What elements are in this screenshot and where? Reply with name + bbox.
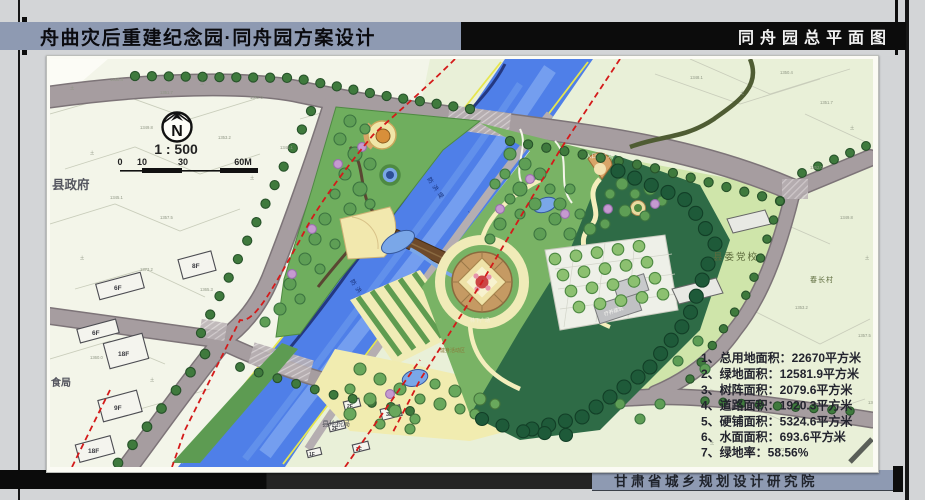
scale-bar: 0 10 30 60M — [117, 157, 258, 173]
footer-institute-bar: 甘肃省城乡规划设计研究院 — [592, 470, 893, 491]
svg-text:18F: 18F — [118, 351, 129, 358]
svg-text:1365.3: 1365.3 — [200, 287, 213, 292]
svg-text:1349.8: 1349.8 — [840, 215, 853, 220]
svg-text:60M: 60M — [234, 157, 252, 167]
svg-text:1350.4: 1350.4 — [110, 77, 123, 82]
svg-text:10: 10 — [137, 157, 147, 167]
svg-text:1357.5: 1357.5 — [160, 215, 173, 220]
svg-text:0: 0 — [117, 157, 122, 167]
svg-text:土: 土 — [90, 149, 94, 155]
svg-text:土: 土 — [150, 376, 154, 382]
svg-text:1360.0: 1360.0 — [90, 355, 103, 360]
drawing-sheet: { "header": { "title_left": "舟曲灾后重建纪念园·同… — [0, 0, 925, 500]
svg-text:1F: 1F — [309, 452, 315, 458]
statistics-list: 1、总用地面积：22670平方米 2、绿地面积：12581.9平方米 3、树阵面… — [701, 350, 862, 460]
svg-text:6F: 6F — [92, 330, 100, 337]
site-plan-svg: 防洪堤 防洪堤 三眼峪 — [50, 59, 873, 467]
grain-bureau-label: 食局 — [50, 376, 71, 389]
svg-text:30: 30 — [178, 157, 188, 167]
svg-text:1350.4: 1350.4 — [780, 70, 793, 75]
north-letter: N — [171, 123, 183, 140]
svg-text:1348.1: 1348.1 — [690, 75, 703, 80]
svg-text:6F: 6F — [114, 285, 122, 292]
title-right-band: 同舟园总平面图 — [461, 22, 906, 50]
svg-text:6、水面面积：693.6平方米: 6、水面面积：693.6平方米 — [701, 429, 847, 444]
junction-hatch-ne — [782, 179, 808, 199]
left-trim-line — [18, 0, 20, 500]
svg-text:土: 土 — [200, 79, 204, 85]
svg-text:1349.8: 1349.8 — [140, 125, 153, 130]
svg-text:土: 土 — [250, 174, 254, 180]
svg-text:5、硬铺面积：5324.6平方米: 5、硬铺面积：5324.6平方米 — [701, 414, 853, 429]
site-plan-paper: 防洪堤 防洪堤 三眼峪 — [46, 55, 879, 473]
svg-text:9F: 9F — [114, 405, 122, 412]
svg-text:1、总用地面积：22670平方米: 1、总用地面积：22670平方米 — [701, 350, 862, 365]
scale-text: 1 : 500 — [154, 141, 198, 157]
right-trim-line — [905, 0, 909, 500]
svg-text:1373.2: 1373.2 — [140, 267, 153, 272]
svg-text:1352.0: 1352.0 — [250, 95, 263, 100]
footer-right-tick — [893, 466, 903, 492]
fitness-area-label: 健身活动区 — [440, 347, 465, 354]
svg-text:1351.7: 1351.7 — [820, 100, 833, 105]
title-left-band: 舟曲灾后重建纪念园·同舟园方案设计 — [0, 22, 461, 50]
tax-bureau-label: 县地税局 — [322, 419, 350, 428]
village-label: 春长村 — [810, 275, 834, 284]
svg-text:3、树阵面积：2079.6平方米: 3、树阵面积：2079.6平方米 — [701, 382, 853, 397]
svg-text:1352.0: 1352.0 — [810, 165, 823, 170]
svg-text:1345.1: 1345.1 — [110, 195, 123, 200]
svg-text:4、道路面积：1920.3平方米: 4、道路面积：1920.3平方米 — [701, 398, 853, 413]
svg-text:土: 土 — [850, 124, 854, 130]
svg-text:1353.2: 1353.2 — [795, 305, 808, 310]
sheet-title: 舟曲灾后重建纪念园·同舟园方案设计 — [40, 23, 376, 50]
svg-text:1353.2: 1353.2 — [218, 135, 231, 140]
svg-text:1351.7: 1351.7 — [160, 90, 173, 95]
svg-text:1360.0: 1360.0 — [868, 400, 873, 405]
svg-text:1348.1: 1348.1 — [280, 145, 293, 150]
svg-text:土: 土 — [865, 254, 869, 260]
svg-text:土: 土 — [70, 84, 74, 90]
svg-text:1357.5: 1357.5 — [858, 333, 871, 338]
svg-text:2、绿地面积：12581.9平方米: 2、绿地面积：12581.9平方米 — [701, 366, 860, 381]
svg-text:土: 土 — [80, 254, 84, 260]
svg-text:7、绿地率：58.56%: 7、绿地率：58.56% — [701, 445, 809, 460]
party-school-label: 县委党校 — [713, 251, 759, 263]
north-compass: N — [163, 113, 192, 142]
institute-name: 甘肃省城乡规划设计研究院 — [614, 470, 818, 490]
grove-plaza-label: 林下广场 — [470, 317, 490, 324]
county-gov-label: 县政府 — [52, 177, 90, 192]
sheet-subtitle: 同舟园总平面图 — [738, 24, 892, 48]
title-bar: 舟曲灾后重建纪念园·同舟园方案设计 同舟园总平面图 — [0, 22, 906, 50]
svg-text:8F: 8F — [192, 263, 200, 270]
svg-text:土: 土 — [740, 89, 744, 95]
svg-text:18F: 18F — [88, 448, 99, 455]
